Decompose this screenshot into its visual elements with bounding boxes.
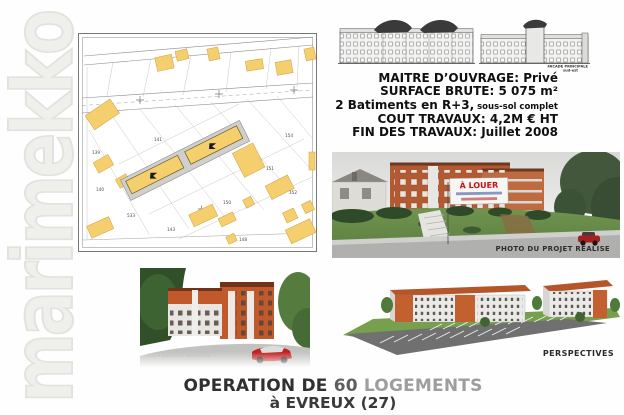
parcel-number: 148 [239,237,247,242]
elevation-drawing: FACADE PRINCIPALE sud-est [338,16,592,74]
parcel-number: 152 [289,190,297,195]
banner-text: À LOUER [459,179,498,191]
project-info: MAITRE D’OUVRAGE: Privé SURFACE BRUTE: 5… [335,72,558,140]
parcel-number: 140 [96,187,104,192]
perspectives-caption: PERSPECTIVES [543,349,614,358]
parcel-number: 151 [266,166,274,171]
info-cout: COUT TRAVAUX: 4,2M € HT [335,113,558,125]
render-left-scene [140,268,310,368]
render-street-view: C.E.2 Baumont Architecte [140,268,310,368]
title-part2: 60 [334,376,364,396]
project-buildings [120,120,249,200]
info-batiments-small: sous-sol complet [474,102,558,112]
page-title: OPERATION DE 60 LOGEMENTS à EVREUX (27) [42,377,624,412]
parcel-number: 141 [154,137,162,142]
parcel-number: 139 [92,150,100,155]
elevation-left [338,20,475,63]
marimekko-watermark: marimekko [4,12,82,403]
render-right-scene [335,275,620,360]
parcel-number: 154 [285,133,293,138]
title-part3: LOGEMENTS [364,376,483,396]
photo-caption: PHOTO DU PROJET REALISE [496,245,610,253]
project-photo: À LOUER [332,152,620,258]
info-surface: SURFACE BRUTE: 5 075 m² [335,85,558,97]
photo-banner: À LOUER [450,177,508,204]
info-batiments: 2 Batiments en R+3, sous-sol complet [335,99,558,112]
render-left-buildings [168,282,274,339]
site-plan-panel: 141 139 140 533 154 151 152 150 148 143 [78,33,317,252]
render-credit: C.E.2 Baumont Architecte [148,354,211,359]
facade-elevations: FACADE PRINCIPALE sud-est [338,16,592,74]
render-right-building-left [390,285,531,322]
title-part1: OPERATION DE [183,376,333,396]
parcel-number: 143 [167,227,175,232]
parcel-number: 150 [223,200,231,205]
portfolio-page: marimekko [0,0,624,415]
info-batiments-main: 2 Batiments en R+3, [335,98,474,112]
info-fin-travaux: FIN DES TRAVAUX: Juillet 2008 [335,126,558,138]
render-right-building-right [543,280,613,318]
elevation-caption-line2: sud-est [563,69,578,73]
title-line2: à EVREUX (27) [42,395,624,412]
title-line1: OPERATION DE 60 LOGEMENTS [42,377,624,395]
info-maitre-ouvrage: MAITRE D’OUVRAGE: Privé [335,72,558,84]
elevation-right [479,20,590,64]
render-perspective: PERSPECTIVES [335,275,620,360]
parcel-number: 533 [127,213,135,218]
site-plan-drawing: 141 139 140 533 154 151 152 150 148 143 [79,34,316,251]
photo-scene: À LOUER [332,152,620,258]
